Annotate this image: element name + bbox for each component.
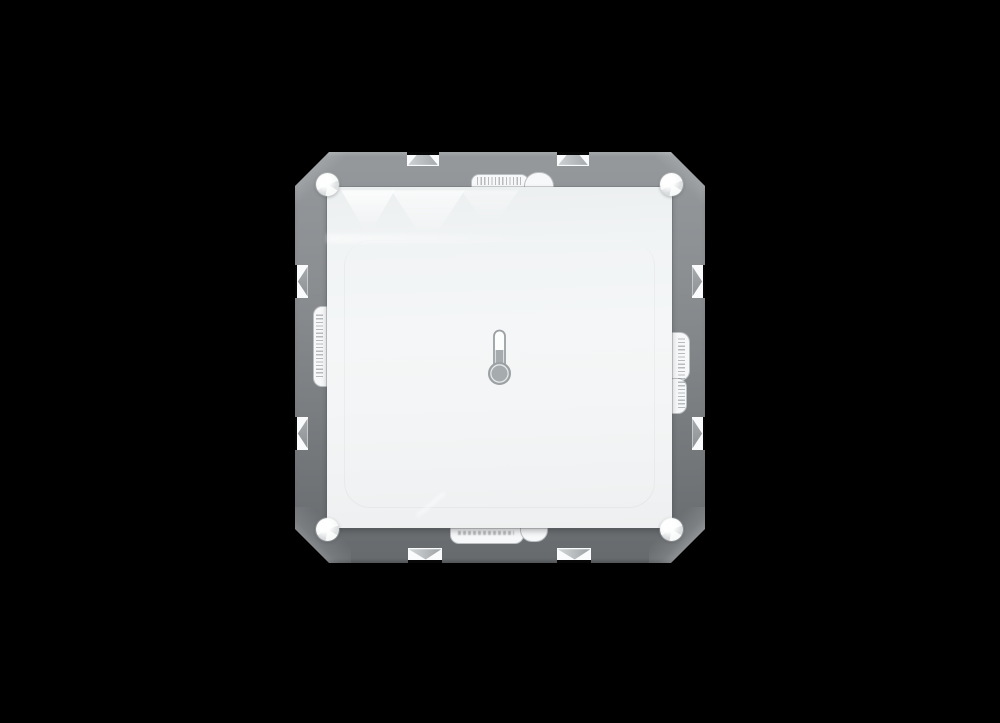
mounting-claw xyxy=(407,155,439,166)
claw-facet xyxy=(408,548,442,560)
claw-facet xyxy=(297,265,308,298)
frame-notch xyxy=(557,152,589,166)
cover-clip-bottom xyxy=(450,526,524,544)
mounting-claw xyxy=(692,265,703,298)
claw-facet xyxy=(692,265,703,298)
mounting-claw xyxy=(692,417,703,450)
claw-facet xyxy=(297,417,308,450)
claw-facet xyxy=(557,155,589,166)
mounting-claw xyxy=(297,265,308,298)
claw-facet xyxy=(557,548,591,560)
clip-serration xyxy=(477,177,521,185)
clip-serration xyxy=(316,313,323,377)
cover-plate xyxy=(327,187,672,528)
mounting-claw xyxy=(408,548,442,560)
mounting-claw xyxy=(297,417,308,450)
frame-notch xyxy=(692,417,705,450)
claw-facet xyxy=(692,417,703,450)
frame-notch xyxy=(557,548,591,563)
molded-marking xyxy=(458,531,514,535)
fixing-screw xyxy=(316,518,339,541)
clip-serration xyxy=(678,338,685,408)
claw-facet xyxy=(407,155,439,166)
frame-notch xyxy=(295,265,308,298)
fixing-screw xyxy=(660,518,683,541)
frame-notch xyxy=(408,548,442,563)
fixing-screw xyxy=(316,173,339,196)
mounting-claw xyxy=(557,155,589,166)
thermometer-icon xyxy=(486,329,513,386)
product-photo-canvas xyxy=(0,0,1000,723)
fixing-screw xyxy=(660,173,683,196)
frame-notch xyxy=(295,417,308,450)
reflection-highlight xyxy=(341,190,395,236)
frame-notch xyxy=(407,152,439,166)
thermometer-icon-svg xyxy=(486,329,513,386)
reflection-highlight xyxy=(391,190,465,246)
reflection-highlight xyxy=(461,190,519,230)
frame-notch xyxy=(692,265,705,298)
mounting-claw xyxy=(557,548,591,560)
